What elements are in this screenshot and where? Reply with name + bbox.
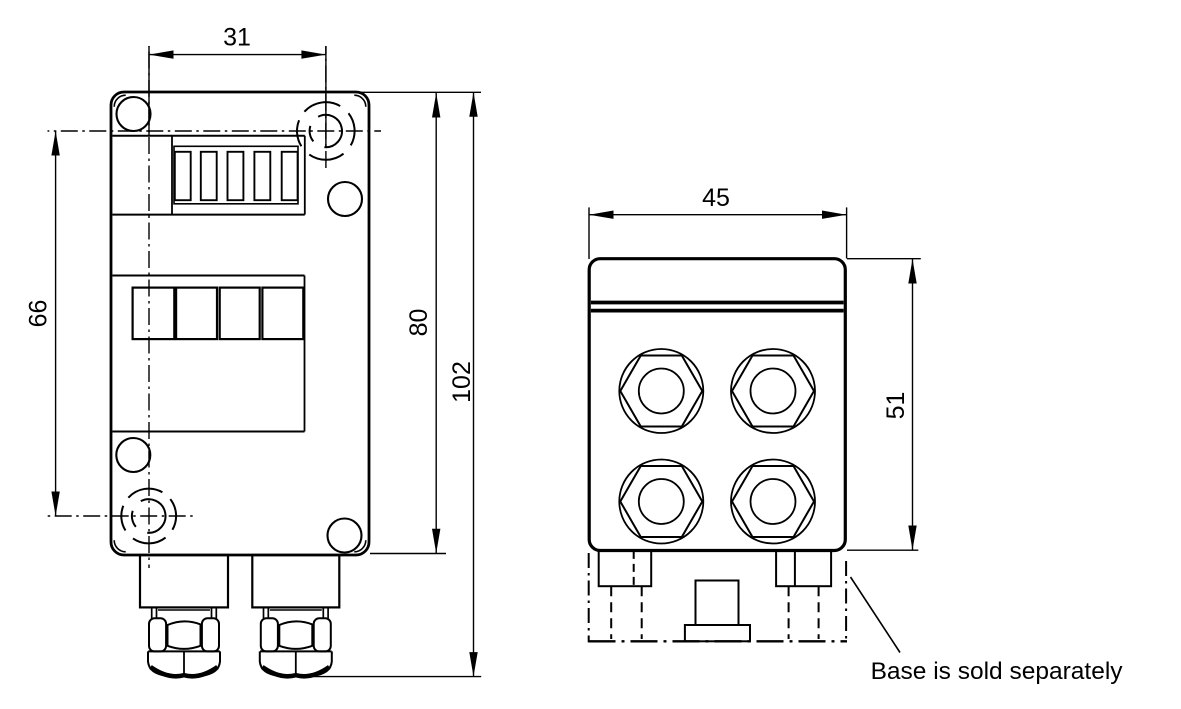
svg-text:80: 80 (405, 309, 433, 337)
svg-text:66: 66 (25, 300, 53, 328)
svg-text:Base is sold separately: Base is sold separately (871, 658, 1124, 685)
svg-text:45: 45 (702, 184, 730, 212)
svg-text:31: 31 (223, 24, 251, 52)
svg-text:102: 102 (448, 361, 476, 403)
svg-text:51: 51 (882, 392, 910, 420)
